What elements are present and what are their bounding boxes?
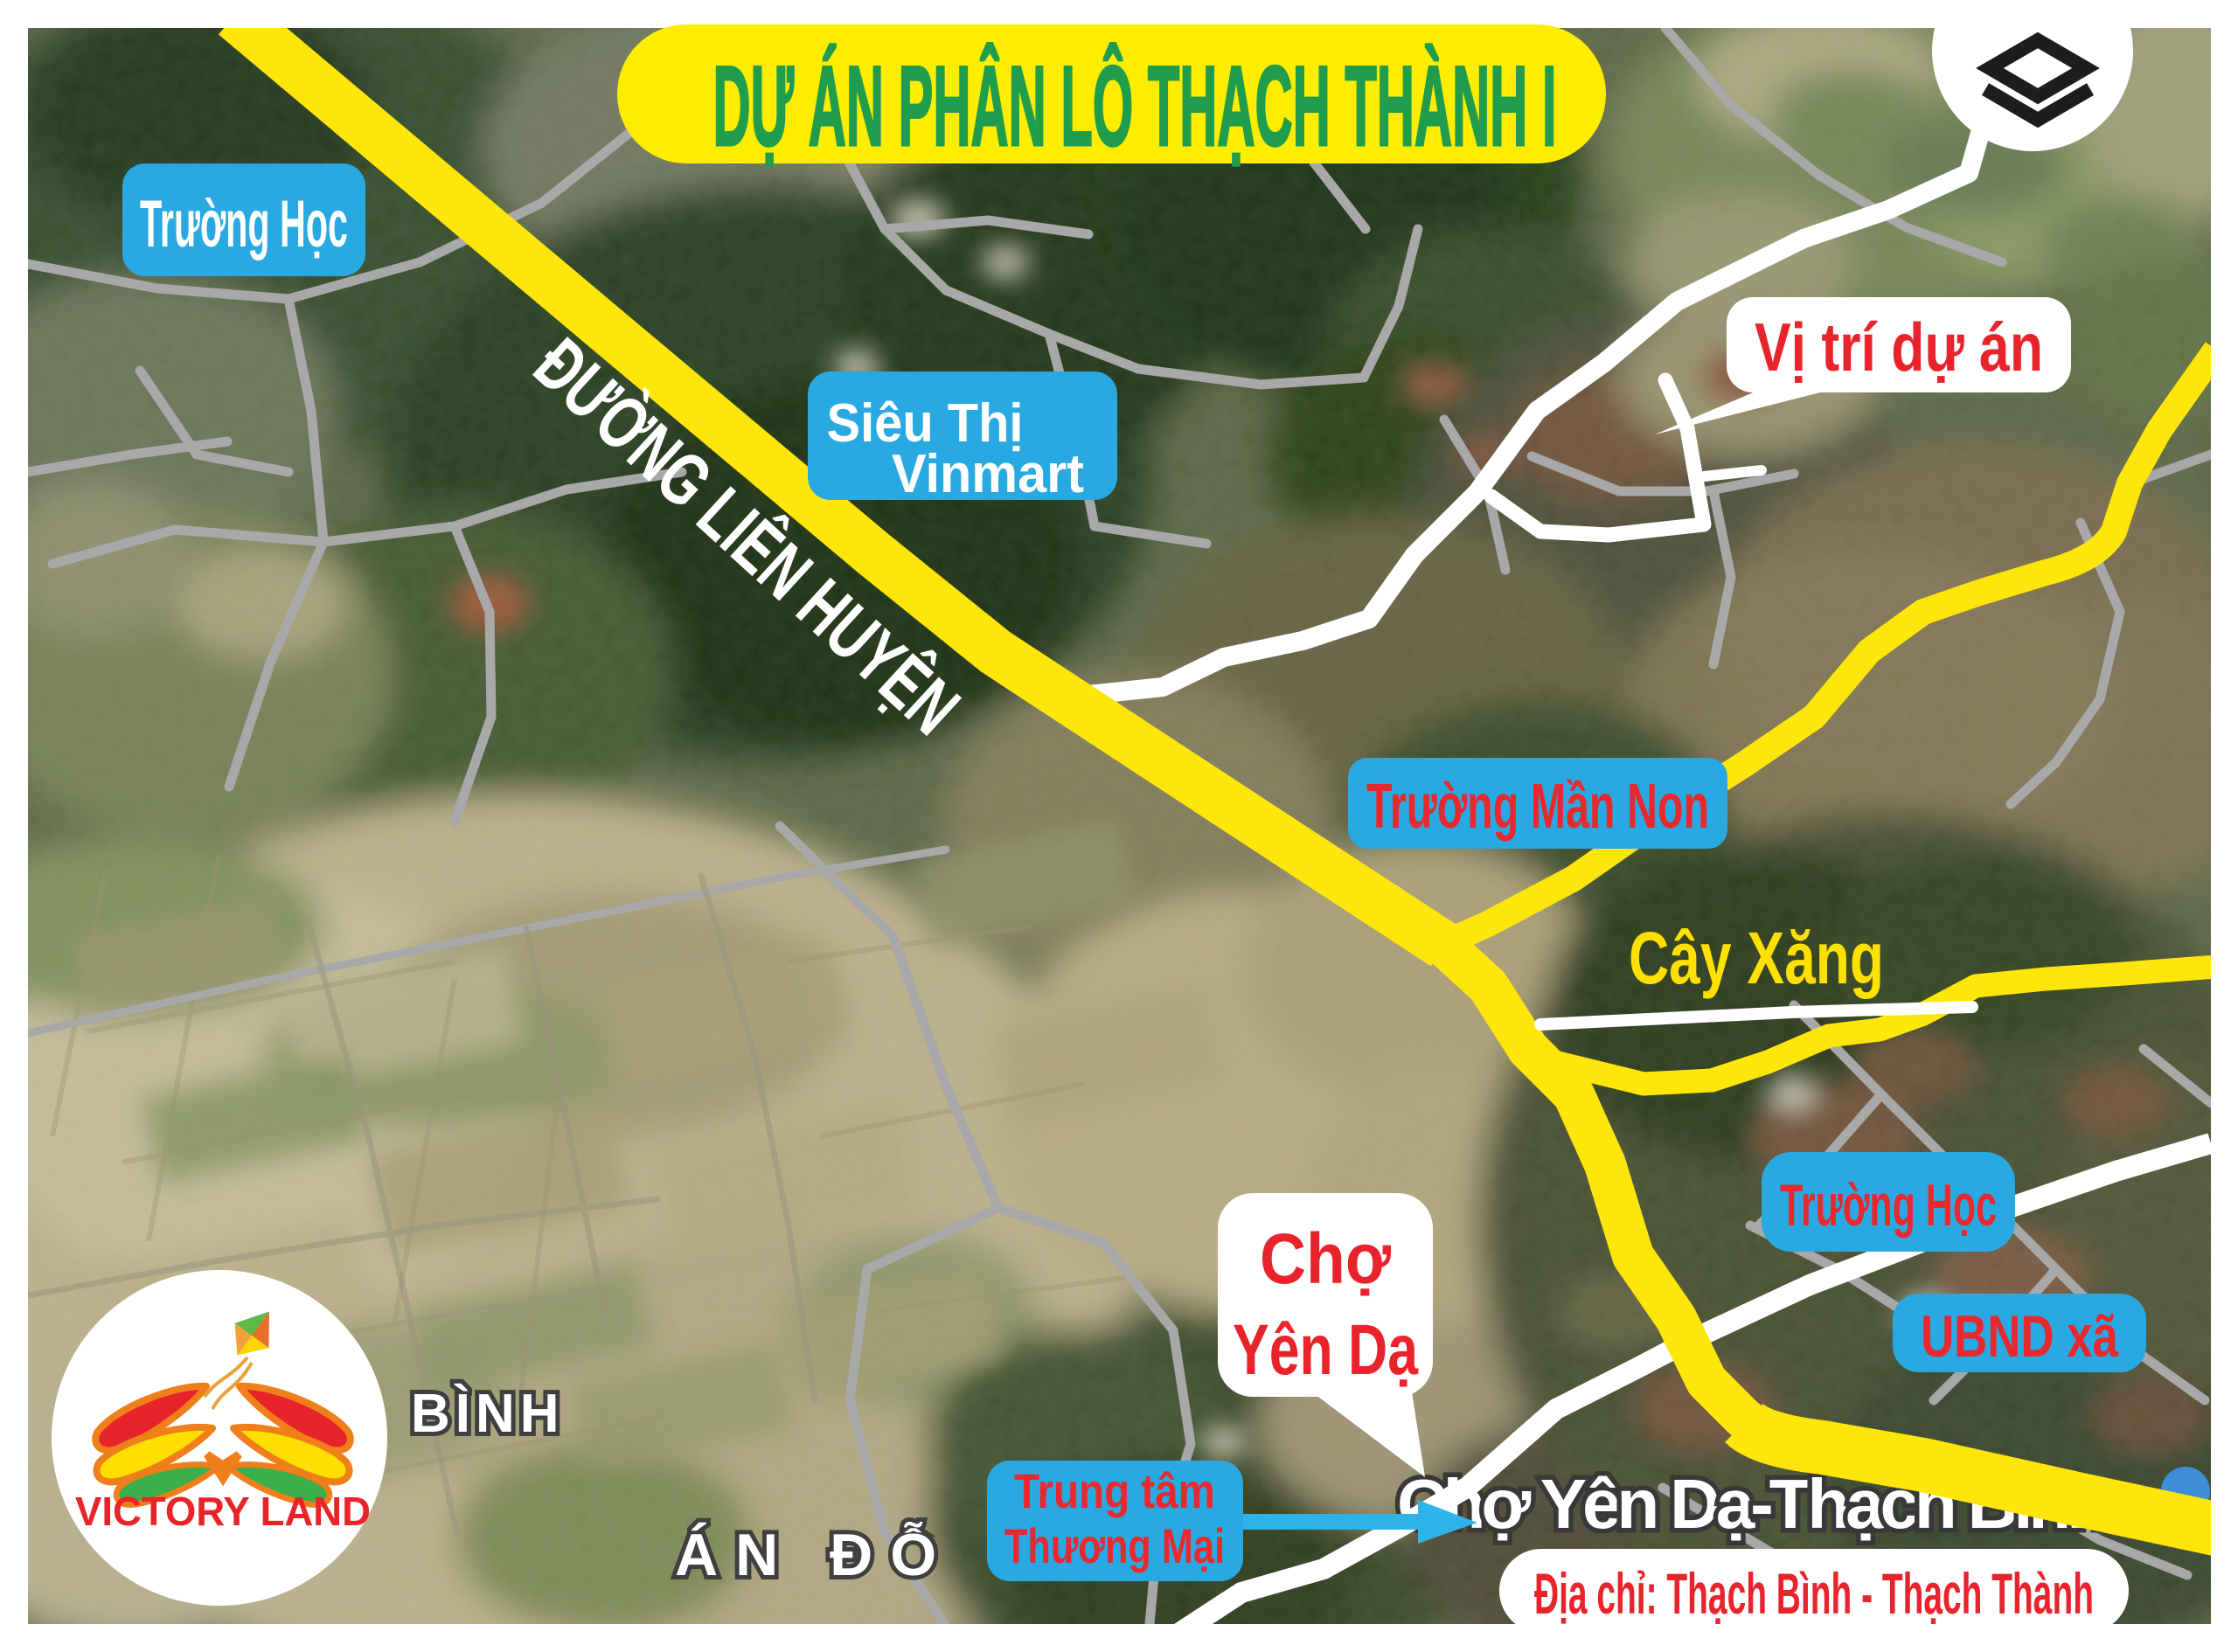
svg-text:Trường Học: Trường Học xyxy=(1780,1172,1997,1239)
svg-text:Trường Mần Non: Trường Mần Non xyxy=(1366,772,1709,842)
svg-text:Trung tâm: Trung tâm xyxy=(1014,1463,1215,1518)
svg-text:Thương Mại: Thương Mại xyxy=(1004,1518,1225,1573)
svg-text:Cây Xăng: Cây Xăng xyxy=(1629,917,1884,999)
svg-text:Yên Dạ: Yên Dạ xyxy=(1233,1310,1419,1390)
svg-text:Địa chỉ: Thạch Bình - Thạch Th: Địa chỉ: Thạch Bình - Thạch Thành xyxy=(1534,1561,2094,1626)
svg-text:VICTORY LAND: VICTORY LAND xyxy=(75,1489,371,1534)
svg-text:DỰ ÁN PHÂN LÔ THẠCH THÀNH I: DỰ ÁN PHÂN LÔ THẠCH THÀNH I xyxy=(713,42,1557,170)
svg-text:Vinmart: Vinmart xyxy=(892,444,1084,504)
svg-text:Vị trí dự án: Vị trí dự án xyxy=(1755,309,2043,385)
svg-text:ÁN ĐỖ: ÁN ĐỖ xyxy=(675,1521,954,1588)
svg-text:BÌNH: BÌNH xyxy=(411,1384,565,1444)
svg-text:UBND xã: UBND xã xyxy=(1921,1303,2118,1370)
svg-text:Chợ: Chợ xyxy=(1260,1219,1392,1299)
svg-text:Trường Học: Trường Học xyxy=(140,187,348,261)
